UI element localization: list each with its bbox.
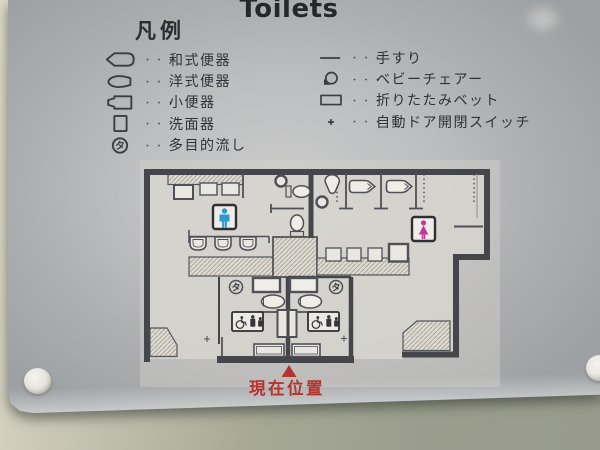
legend-label: ベビーチェアー	[376, 69, 484, 89]
legend-dots: ・・・	[143, 117, 169, 130]
legend-item: ・・・ 洗面器	[97, 113, 247, 134]
folding-bed-icon	[312, 92, 350, 108]
auto-door-switch-icon	[312, 114, 350, 130]
legend-label: 小便器	[169, 92, 216, 112]
womens-room-icon	[412, 217, 435, 241]
accessible-toilet-sign	[232, 312, 263, 331]
multipurpose-symbol: タ	[331, 282, 340, 294]
western-toilet-icon	[97, 73, 143, 90]
mounting-bolt	[24, 368, 51, 394]
legend-item: タ ・・・ 多目的流し	[97, 135, 247, 156]
multipurpose-sink-icon: タ	[97, 137, 143, 154]
legend-heading: 凡例	[135, 15, 185, 45]
legend-label: 洋式便器	[169, 71, 231, 91]
legend-label: 和式便器	[169, 50, 231, 70]
service-niche	[278, 310, 297, 337]
squat-toilet-icon	[97, 51, 143, 68]
legend-label: 折りたたみベット	[376, 90, 500, 110]
photo-of-toilet-map-sign: Toilets 凡例 ・・・ 和式便器 ・・・ 洋式便器 ・・・ 小便器	[0, 0, 600, 450]
urinal-icon	[97, 94, 143, 111]
legend-dots: ・・・	[143, 53, 169, 66]
legend-item: ・・・ 洋式便器	[97, 70, 247, 91]
legend-right-column: ・・・ 手すり ・・・ ベビーチェアー ・・・ 折りたたみベット ・・・ 自動ド…	[312, 47, 531, 133]
legend-item: ・・・ 手すり	[312, 47, 531, 68]
legend-item: ・・・ 小便器	[97, 92, 247, 113]
svg-text:タ: タ	[115, 140, 125, 152]
folding-bed	[290, 278, 317, 292]
legend-item: ・・・ 折りたたみベット	[312, 90, 531, 111]
mens-room-icon	[213, 205, 236, 229]
legend-dots: ・・・	[143, 139, 169, 152]
sign-title: Toilets	[0, 0, 578, 24]
legend-item: ・・・ 自動ドア開閉スイッチ	[312, 111, 531, 132]
floor-plan: タ タ	[140, 160, 500, 400]
legend-item: ・・・ 和式便器	[97, 49, 247, 70]
multipurpose-symbol: タ	[231, 282, 240, 294]
legend-label: 手すり	[376, 48, 423, 68]
handrail-icon	[312, 50, 350, 66]
legend-label: 自動ドア開閉スイッチ	[376, 112, 531, 132]
folding-bed	[253, 278, 280, 292]
legend-left-column: ・・・ 和式便器 ・・・ 洋式便器 ・・・ 小便器 ・・・ 洗面器	[97, 49, 247, 156]
accessible-toilet-sign	[308, 312, 339, 331]
legend-dots: ・・・	[143, 75, 169, 88]
legend-label: 洗面器	[169, 114, 216, 134]
washbasin-icon	[97, 115, 143, 132]
current-location-label: 現在位置	[249, 375, 325, 399]
legend-dots: ・・・	[350, 115, 376, 128]
legend-item: ・・・ ベビーチェアー	[312, 68, 531, 89]
legend-dots: ・・・	[350, 51, 376, 64]
legend-dots: ・・・	[350, 94, 376, 107]
legend-label: 多目的流し	[169, 135, 247, 155]
baby-chair-icon	[312, 71, 350, 87]
legend-dots: ・・・	[350, 73, 376, 86]
legend-dots: ・・・	[143, 96, 169, 109]
